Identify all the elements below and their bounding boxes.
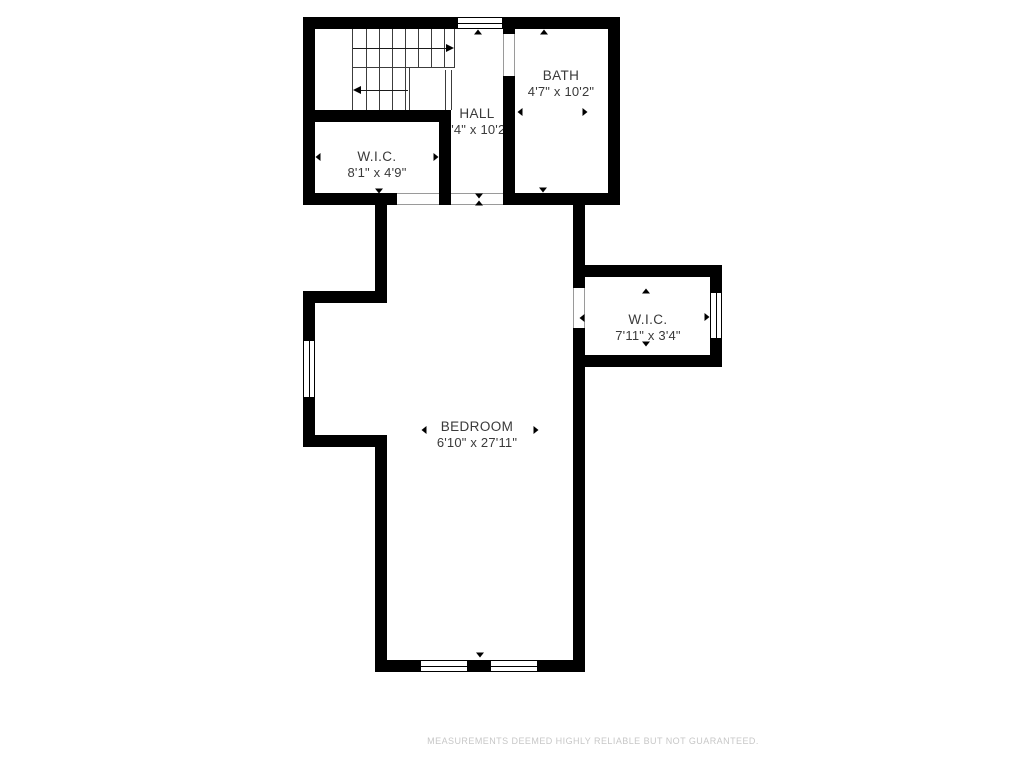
dimension-arrow-right-icon: [534, 426, 539, 434]
dimension-arrow-left-icon: [422, 426, 427, 434]
dimension-arrow-down-icon: [475, 194, 483, 199]
dimension-arrow-down-icon: [375, 189, 383, 194]
window: [420, 660, 468, 672]
window: [490, 660, 538, 672]
staircase: [352, 29, 455, 110]
dimension-arrow-down-icon: [642, 342, 650, 347]
dimension-arrow-right-icon: [434, 153, 439, 161]
dimension-arrow-down-icon: [476, 653, 484, 658]
dimension-arrow-left-icon: [518, 108, 523, 116]
bedroom-right-wall: [573, 193, 585, 660]
room-label-hall: HALL 3'4" x 10'2": [444, 106, 510, 138]
room-dimensions: 3'4" x 10'2": [444, 122, 510, 138]
dimension-arrow-right-icon: [583, 108, 588, 116]
wic-hall-divider-wall: [439, 110, 451, 205]
stair-direction-line: [353, 48, 446, 49]
room-dimensions: 8'1" x 4'9": [347, 165, 406, 181]
stair-direction-left-icon: [353, 86, 361, 94]
dimension-arrow-up-icon: [642, 289, 650, 294]
disclaimer-text: MEASUREMENTS DEEMED HIGHLY RELIABLE BUT …: [427, 736, 759, 746]
wic-right-top-wall: [585, 265, 722, 277]
dimension-arrow-up-icon: [475, 201, 483, 206]
window: [457, 17, 503, 29]
wic-right-bottom-wall: [585, 355, 722, 367]
dimension-arrow-up-icon: [474, 30, 482, 35]
doorway-wic-upper: [397, 193, 439, 205]
stair-direction-line: [361, 90, 408, 91]
top-section-right-wall: [608, 17, 620, 205]
room-name: BEDROOM: [437, 419, 517, 435]
stair-direction-right-icon: [446, 44, 454, 52]
room-name: W.I.C.: [615, 312, 681, 328]
room-label-wic-upper: W.I.C. 8'1" x 4'9": [347, 149, 406, 181]
room-label-bedroom: BEDROOM 6'10" x 27'11": [437, 419, 517, 451]
dimension-arrow-up-icon: [540, 30, 548, 35]
room-name: BATH: [528, 68, 594, 84]
dimension-arrow-left-icon: [316, 153, 321, 161]
dimension-arrow-right-icon: [705, 313, 710, 321]
room-name: HALL: [444, 106, 510, 122]
top-section-left-wall: [303, 17, 315, 205]
bedroom-left-wall-lower: [375, 435, 387, 672]
room-dimensions: 4'7" x 10'2": [528, 84, 594, 100]
window: [303, 340, 315, 398]
bedroom-left-wall-upper: [375, 193, 387, 303]
dimension-arrow-left-icon: [580, 314, 585, 322]
dimension-arrow-down-icon: [539, 188, 547, 193]
stair-railing: [445, 70, 452, 110]
room-label-bath: BATH 4'7" x 10'2": [528, 68, 594, 100]
wic-upper-top-wall: [315, 110, 451, 122]
floor-plan-canvas: W.I.C. 8'1" x 4'9" HALL 3'4" x 10'2" BAT…: [0, 0, 1024, 768]
doorway-wic-right: [573, 288, 585, 328]
window: [710, 292, 722, 339]
doorway-bath: [503, 34, 515, 76]
alcove-top-wall: [303, 291, 387, 303]
room-dimensions: 6'10" x 27'11": [437, 435, 517, 451]
room-name: W.I.C.: [347, 149, 406, 165]
room-label-wic-right: W.I.C. 7'11" x 3'4": [615, 312, 681, 344]
bedroom-bottom-wall: [375, 660, 585, 672]
dimension-arrow-up-icon: [374, 114, 382, 119]
